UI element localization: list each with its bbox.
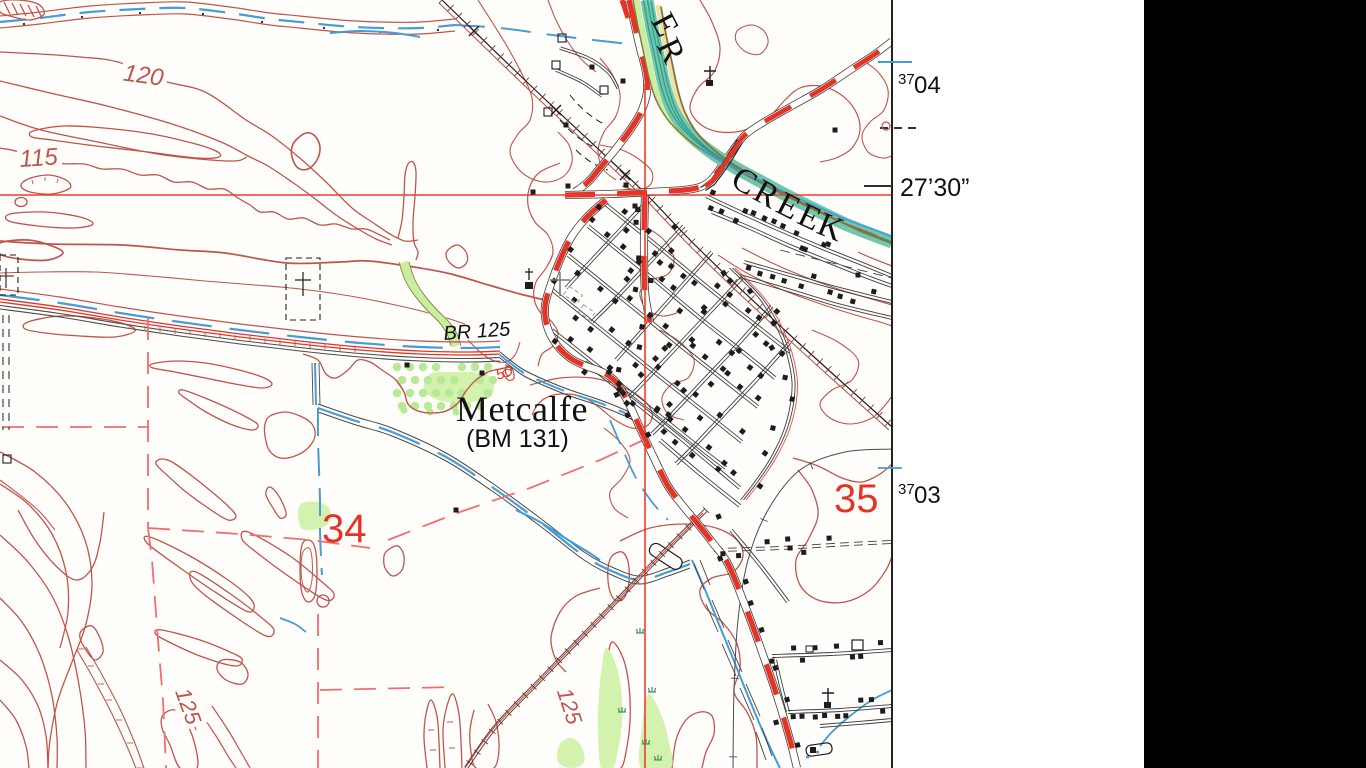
svg-text:120: 120 [122,60,166,92]
svg-text:115: 115 [19,143,60,173]
svg-text:34: 34 [322,507,367,551]
svg-text:(BM 131): (BM 131) [466,425,569,453]
svg-text:03: 03 [914,482,941,509]
svg-text:27’30”: 27’30” [900,174,970,202]
svg-text:Metcalfe: Metcalfe [456,389,588,429]
svg-text:35: 35 [834,477,879,521]
svg-text:37: 37 [898,481,915,498]
svg-text:04: 04 [914,72,941,99]
svg-text:BR 125: BR 125 [443,318,512,345]
svg-text:37: 37 [898,71,915,88]
